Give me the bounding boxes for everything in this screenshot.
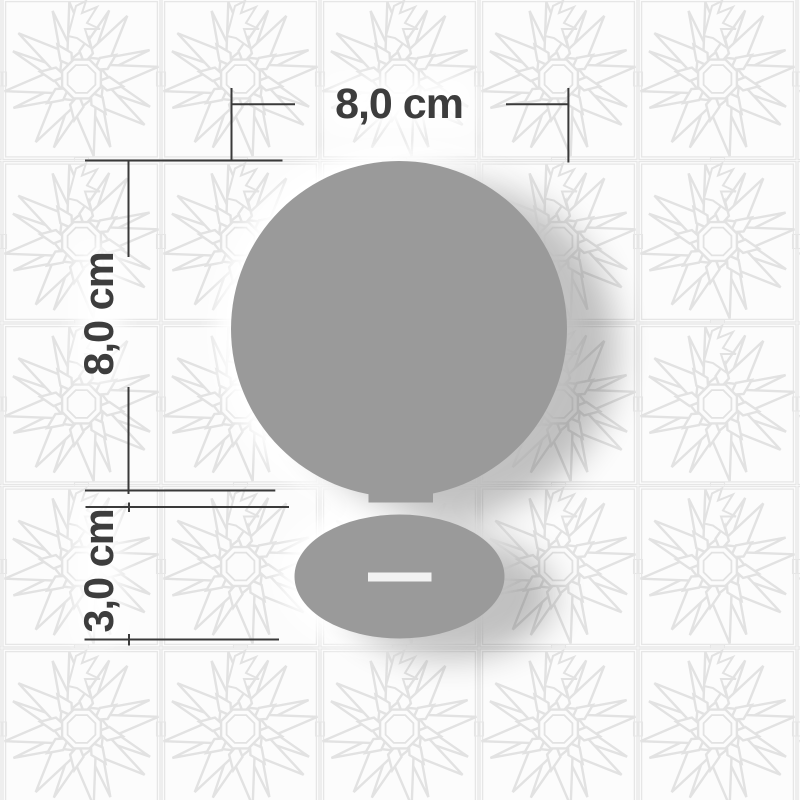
svg-text:3,0 cm: 3,0 cm <box>75 509 122 632</box>
svg-text:8,0 cm: 8,0 cm <box>75 252 122 375</box>
svg-text:8,0 cm: 8,0 cm <box>335 80 463 128</box>
